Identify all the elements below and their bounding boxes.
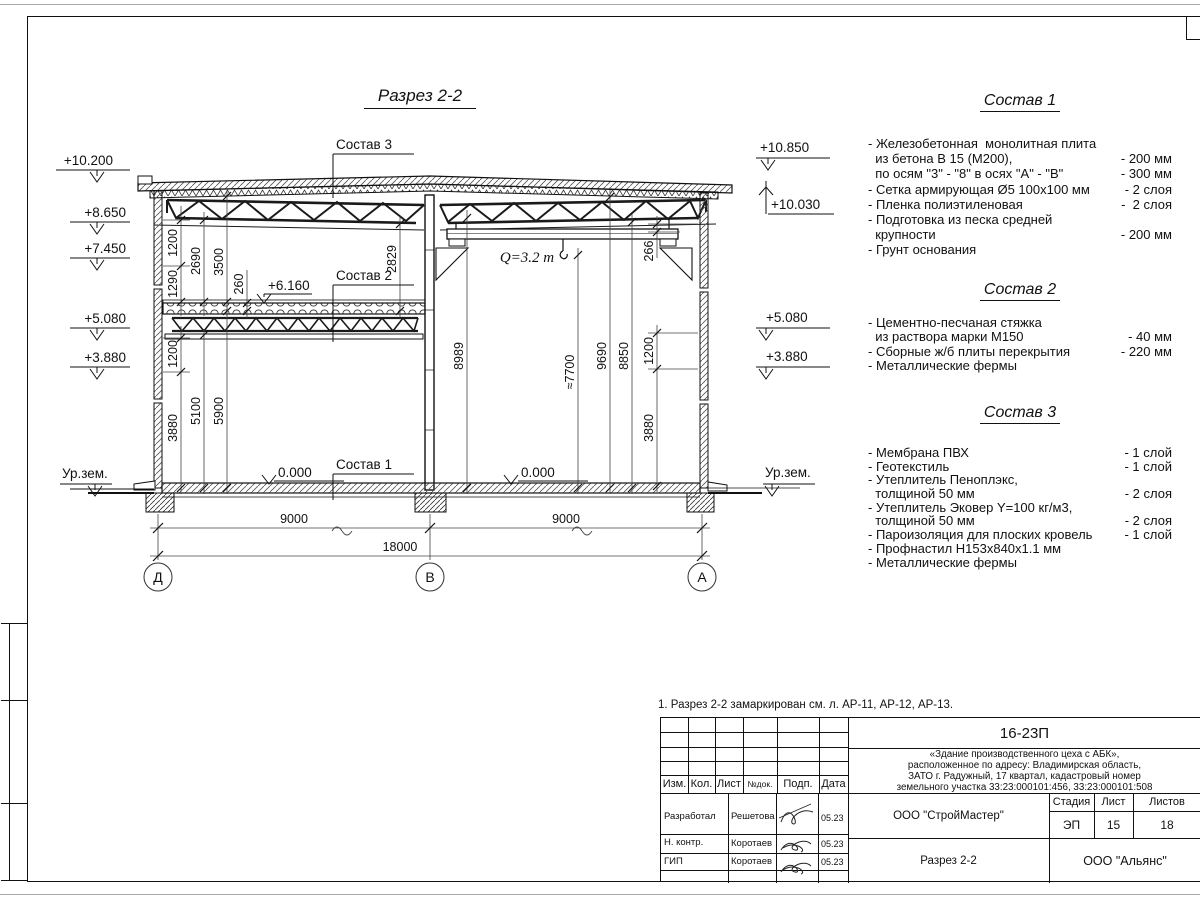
layer-value: - 200 мм <box>1121 227 1172 242</box>
layer-row: - Профнастил Н153х840х1.1 мм <box>868 541 1172 555</box>
title-block: Изм. Кол. Лист №док. Подп. Дата Разработ… <box>660 717 1200 882</box>
composition-leaders <box>333 154 414 500</box>
side-stamp-line <box>9 623 10 880</box>
tb-header-list: Лист <box>715 775 743 793</box>
tb-contractor: ООО "СтройМастер" <box>848 793 1049 838</box>
svg-text:5900: 5900 <box>212 397 226 425</box>
svg-text:+10.850: +10.850 <box>760 140 809 155</box>
svg-text:1200: 1200 <box>166 229 180 257</box>
layer-row: толщиной 50 мм- 2 слоя <box>868 513 1172 527</box>
drawing-sheet: Разрез 2-2 <box>0 0 1200 900</box>
layer-text: из бетона В 15 (М200), <box>868 151 1012 166</box>
column-middle <box>425 195 434 490</box>
tb-date-razrabotal: 05.23 <box>821 813 844 823</box>
layer-value: - 220 мм <box>1121 344 1172 359</box>
composition-1-list: - Железобетонная монолитная плита из бет… <box>868 136 1172 258</box>
layer-row: - Геотекстиль- 1 слой <box>868 459 1172 473</box>
tb-desc-line: ЗАТО г. Радужный, 17 квартал, кадастровы… <box>908 771 1141 782</box>
layer-value: - 1 слой <box>1124 527 1172 542</box>
tb-desc-line: земельного участка 33:23:000101:456, 33:… <box>897 782 1153 793</box>
roof-truss-right <box>440 200 716 230</box>
layer-text: - Сетка армирующая Ø5 100х100 мм <box>868 182 1090 197</box>
svg-text:9000: 9000 <box>552 512 580 526</box>
sheet-edge-bottom <box>0 894 1200 895</box>
layer-text: из раствора марки М150 <box>868 329 1024 344</box>
svg-text:+8.650: +8.650 <box>84 205 126 220</box>
layer-value: - 2 слоя <box>1121 197 1172 212</box>
svg-text:1290: 1290 <box>166 270 180 298</box>
tb-date-nkontr: 05.23 <box>821 839 844 849</box>
svg-text:5100: 5100 <box>189 397 203 425</box>
layer-value: - 2 слоя <box>1125 486 1172 501</box>
layer-row: - Мембрана ПВХ- 1 слой <box>868 445 1172 459</box>
dimension-texts: 1200 1290 2690 3500 260 2829 1200 3880 5… <box>166 229 656 554</box>
svg-text:+7.450: +7.450 <box>84 241 126 256</box>
svg-text:3880: 3880 <box>166 414 180 442</box>
svg-text:≈7700: ≈7700 <box>563 355 577 390</box>
layer-text: - Металлические фермы <box>868 555 1017 570</box>
tb-role-razrabotal: Разработал <box>664 811 716 822</box>
axis-label: Д <box>153 569 163 585</box>
svg-text:266: 266 <box>642 241 656 262</box>
layer-row: - Металлические фермы <box>868 555 1172 569</box>
level-texts-left: +10.200 +8.650 +7.450 +5.080 +3.880 Ур.з… <box>62 153 126 481</box>
side-stamp-line <box>1 700 27 701</box>
tb-header-data: Дата <box>819 775 848 793</box>
ground-level-label-left: Ур.зем. <box>62 466 108 481</box>
tb-date-gip: 05.23 <box>821 857 844 867</box>
svg-text:+3.880: +3.880 <box>766 349 808 364</box>
layer-row: - Цементно-песчаная стяжка <box>868 315 1172 329</box>
wall-left <box>154 191 162 488</box>
layer-text: - Подготовка из песка средней <box>868 212 1052 227</box>
layer-row: толщиной 50 мм- 2 слоя <box>868 486 1172 500</box>
layer-value: - 1 слой <box>1124 459 1172 474</box>
svg-text:260: 260 <box>232 274 246 295</box>
svg-text:9690: 9690 <box>595 342 609 370</box>
tb-stage-label: Стадия <box>1049 793 1094 811</box>
zero-marks <box>257 294 588 484</box>
svg-text:+10.200: +10.200 <box>64 153 113 168</box>
tb-name-nkontr: Коротаев <box>731 838 772 849</box>
tb-project-description: «Здание производственного цеха с АБК», р… <box>848 748 1200 793</box>
tb-header-podp: Подп. <box>777 775 819 793</box>
tb-name-razrabotal: Решетова <box>731 811 775 822</box>
mezzanine-floor <box>163 300 425 339</box>
zero-mark-left: 0.000 <box>278 465 312 480</box>
layer-row: - Пароизоляция для плоских кровель- 1 сл… <box>868 527 1172 541</box>
svg-text:1200: 1200 <box>642 337 656 365</box>
layer-row: - Железобетонная монолитная плита <box>868 136 1172 151</box>
composition-3-list: - Мембрана ПВХ- 1 слой - Геотекстиль- 1 … <box>868 445 1172 568</box>
tb-desc-line: расположенное по адресу: Владимирская об… <box>908 760 1141 771</box>
tb-sheets-label: Листов <box>1133 793 1200 811</box>
drawing-note: 1. Разрез 2-2 замаркирован см. л. АР-11,… <box>658 699 953 711</box>
svg-text:Состав 2: Состав 2 <box>336 268 392 283</box>
svg-text:8850: 8850 <box>617 342 631 370</box>
tb-name-gip: Коротаев <box>731 856 772 867</box>
layer-row: - Сборные ж/б плиты перекрытия- 220 мм <box>868 344 1172 358</box>
tb-doc-code: 16-23П <box>848 718 1200 748</box>
tb-company: ООО "Альянс" <box>1049 838 1200 883</box>
layer-row: - Пленка полиэтиленовая- 2 слоя <box>868 197 1172 212</box>
mezzanine-level-mark: +6.160 <box>268 278 310 293</box>
tb-role-gip: ГИП <box>664 856 683 867</box>
tb-header-ndok: №док. <box>743 775 777 793</box>
roof-truss-left <box>154 200 424 230</box>
layer-value: - 300 мм <box>1121 166 1172 181</box>
tb-role-nkontr: Н. контр. <box>664 837 703 848</box>
svg-text:+5.080: +5.080 <box>84 311 126 326</box>
layer-text: - Сборные ж/б плиты перекрытия <box>868 344 1070 359</box>
side-stamp-line <box>1 880 27 881</box>
layer-text: - Железобетонная монолитная плита <box>868 136 1096 151</box>
svg-text:+5.080: +5.080 <box>766 310 808 325</box>
layer-row: крупности- 200 мм <box>868 227 1172 242</box>
wall-right <box>700 193 708 488</box>
composition-2-list: - Цементно-песчаная стяжка из раствора м… <box>868 315 1172 373</box>
ground-line-left <box>70 481 155 493</box>
layer-row: - Сетка армирующая Ø5 100х100 мм- 2 слоя <box>868 182 1172 197</box>
layer-text: - Грунт основания <box>868 242 976 257</box>
tb-stage-value: ЭП <box>1049 811 1094 838</box>
layer-row: из бетона В 15 (М200),- 200 мм <box>868 151 1172 166</box>
zero-mark-right: 0.000 <box>521 465 555 480</box>
layer-row: по осям "3" - "8" в осях "А" - "В"- 300 … <box>868 166 1172 181</box>
axis-label: А <box>697 569 707 585</box>
section-drawing: Q=3.2 т <box>0 0 840 620</box>
side-stamp-line <box>1 623 27 624</box>
svg-text:Состав 3: Состав 3 <box>336 137 392 152</box>
layer-row: - Утеплитель Пеноплэкс, <box>868 472 1172 486</box>
layer-text: крупности <box>868 227 936 242</box>
svg-text:8989: 8989 <box>452 342 466 370</box>
tb-header-izm: Изм. <box>661 775 688 793</box>
svg-text:18000: 18000 <box>383 540 418 554</box>
layer-row: - Грунт основания <box>868 242 1172 257</box>
layer-row: из раствора марки М150- 40 мм <box>868 329 1172 343</box>
floor-slab <box>146 483 714 512</box>
tb-sheets-value: 18 <box>1133 811 1200 838</box>
layer-value: - 2 слоя <box>1125 182 1172 197</box>
tb-sheet-value: 15 <box>1094 811 1133 838</box>
layer-text: - Цементно-песчаная стяжка <box>868 315 1042 330</box>
tb-sheet-label: Лист <box>1094 793 1133 811</box>
tb-header-kol: Кол. <box>688 775 715 793</box>
svg-text:3500: 3500 <box>212 248 226 276</box>
composition-1-title: Состав 1 <box>868 92 1172 112</box>
axis-label: В <box>425 569 434 585</box>
svg-text:+10.030: +10.030 <box>771 197 820 212</box>
signature-razrabotal <box>777 796 817 832</box>
crane-capacity-label: Q=3.2 т <box>500 250 554 266</box>
svg-text:9000: 9000 <box>280 512 308 526</box>
svg-text:3880: 3880 <box>642 414 656 442</box>
layer-text: - Пленка полиэтиленовая <box>868 197 1023 212</box>
signature-nkontr-gip <box>777 834 817 882</box>
side-stamp-line <box>1 803 27 804</box>
composition-3-title: Состав 3 <box>868 404 1172 424</box>
layer-row: - Утеплитель Эковер Y=100 кг/м3, <box>868 500 1172 514</box>
svg-text:Состав 1: Состав 1 <box>336 457 392 472</box>
composition-2-title: Состав 2 <box>868 281 1172 301</box>
layer-text: по осям "3" - "8" в осях "А" - "В" <box>868 166 1063 181</box>
svg-text:+3.880: +3.880 <box>84 350 126 365</box>
layer-text: - Металлические фермы <box>868 358 1017 373</box>
layer-row: - Металлические фермы <box>868 358 1172 372</box>
tb-subject: Разрез 2-2 <box>848 838 1049 883</box>
ground-level-label-right: Ур.зем. <box>765 465 811 480</box>
svg-text:1200: 1200 <box>166 340 180 368</box>
layer-value: - 200 мм <box>1121 151 1172 166</box>
layer-value: - 40 мм <box>1128 329 1172 344</box>
layer-row: - Подготовка из песка средней <box>868 212 1172 227</box>
corner-stamp-box <box>1186 17 1200 40</box>
tb-desc-line: «Здание производственного цеха с АБК», <box>930 749 1120 760</box>
axis-bubbles: Д В А <box>144 563 716 591</box>
svg-text:2690: 2690 <box>189 247 203 275</box>
